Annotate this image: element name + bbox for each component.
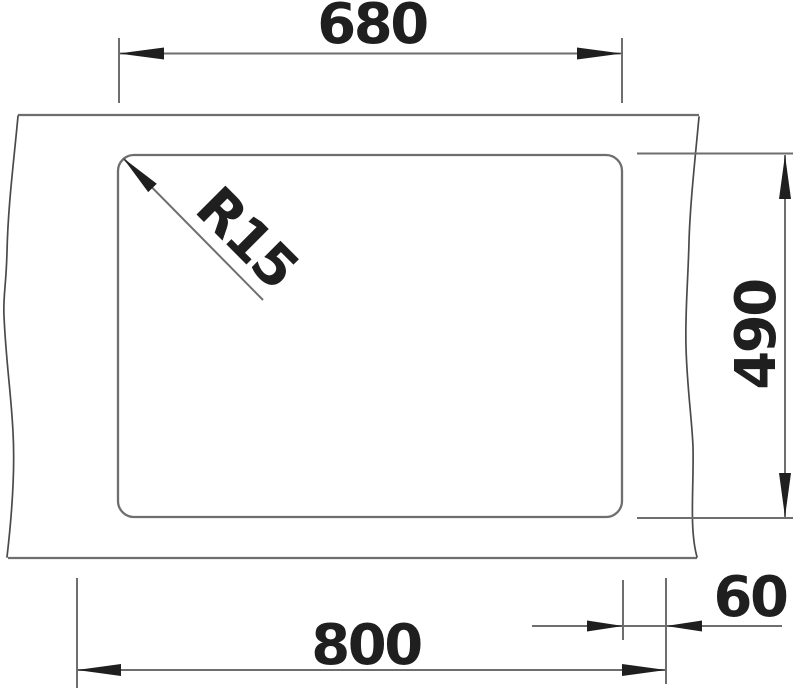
break-lines (4, 116, 699, 557)
arrowhead-800-left (77, 664, 121, 676)
arrowhead-680-right (577, 48, 622, 60)
arrowhead-800-right (622, 664, 666, 676)
dim-label-outer-width: 800 (311, 613, 421, 678)
technical-drawing-canvas: 680 490 800 60 R15 (0, 0, 800, 688)
arrowhead-60-right (666, 621, 702, 632)
arrowhead-490-top (779, 155, 791, 199)
arrowhead-r15-leader (123, 158, 157, 192)
dim-label-inner-width: 680 (317, 0, 427, 57)
arrowhead-680-left (119, 48, 164, 60)
break-line-left (4, 116, 18, 557)
dim-label-edge-offset: 60 (714, 565, 787, 630)
arrowheads (77, 48, 791, 677)
arrowhead-490-bottom (779, 473, 791, 517)
dimension-labels: 680 490 800 60 R15 (183, 0, 789, 678)
break-line-right (686, 117, 699, 557)
countertop-outline (8, 115, 699, 558)
dimension-lines (77, 38, 793, 688)
dim-label-inner-height: 490 (724, 280, 789, 390)
sink-dimension-drawing: 680 490 800 60 R15 (0, 0, 800, 688)
arrowhead-60-left (587, 621, 623, 632)
dim-label-corner-radius: R15 (183, 175, 309, 301)
